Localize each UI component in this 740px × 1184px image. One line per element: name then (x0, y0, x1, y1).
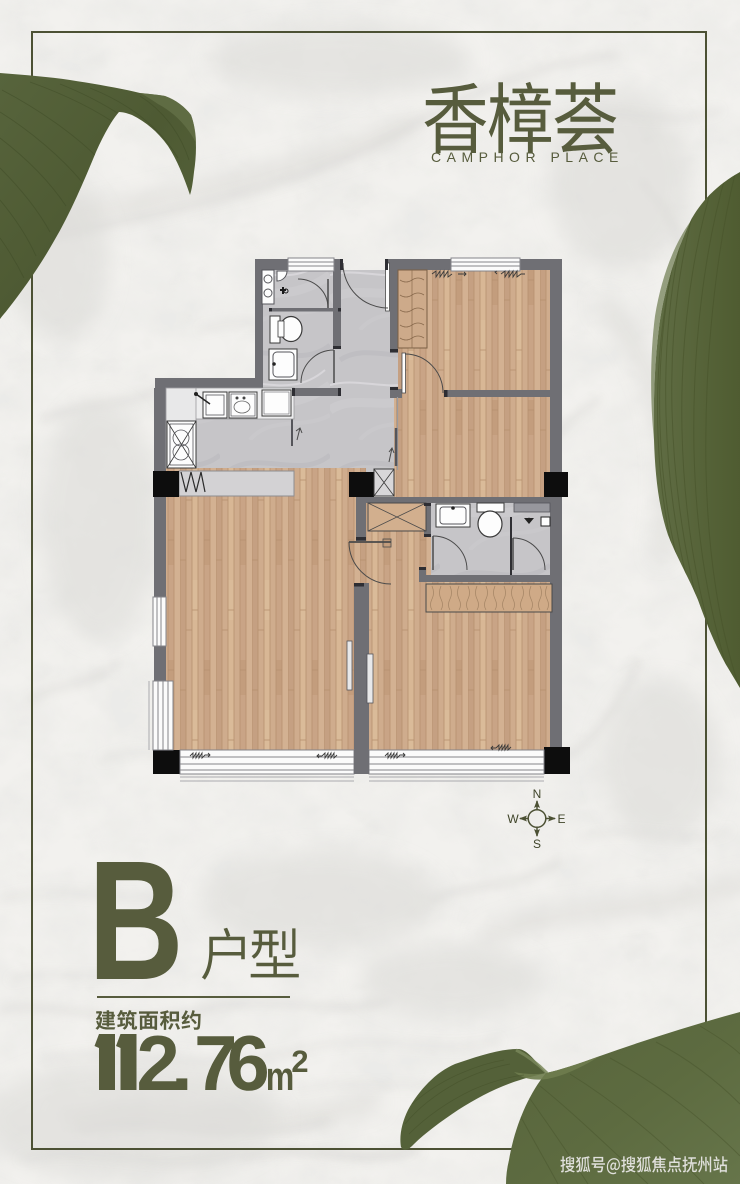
svg-text:S: S (533, 837, 541, 851)
svg-text:E: E (557, 812, 565, 826)
svg-text:N: N (533, 787, 542, 801)
svg-text:W: W (507, 812, 519, 826)
